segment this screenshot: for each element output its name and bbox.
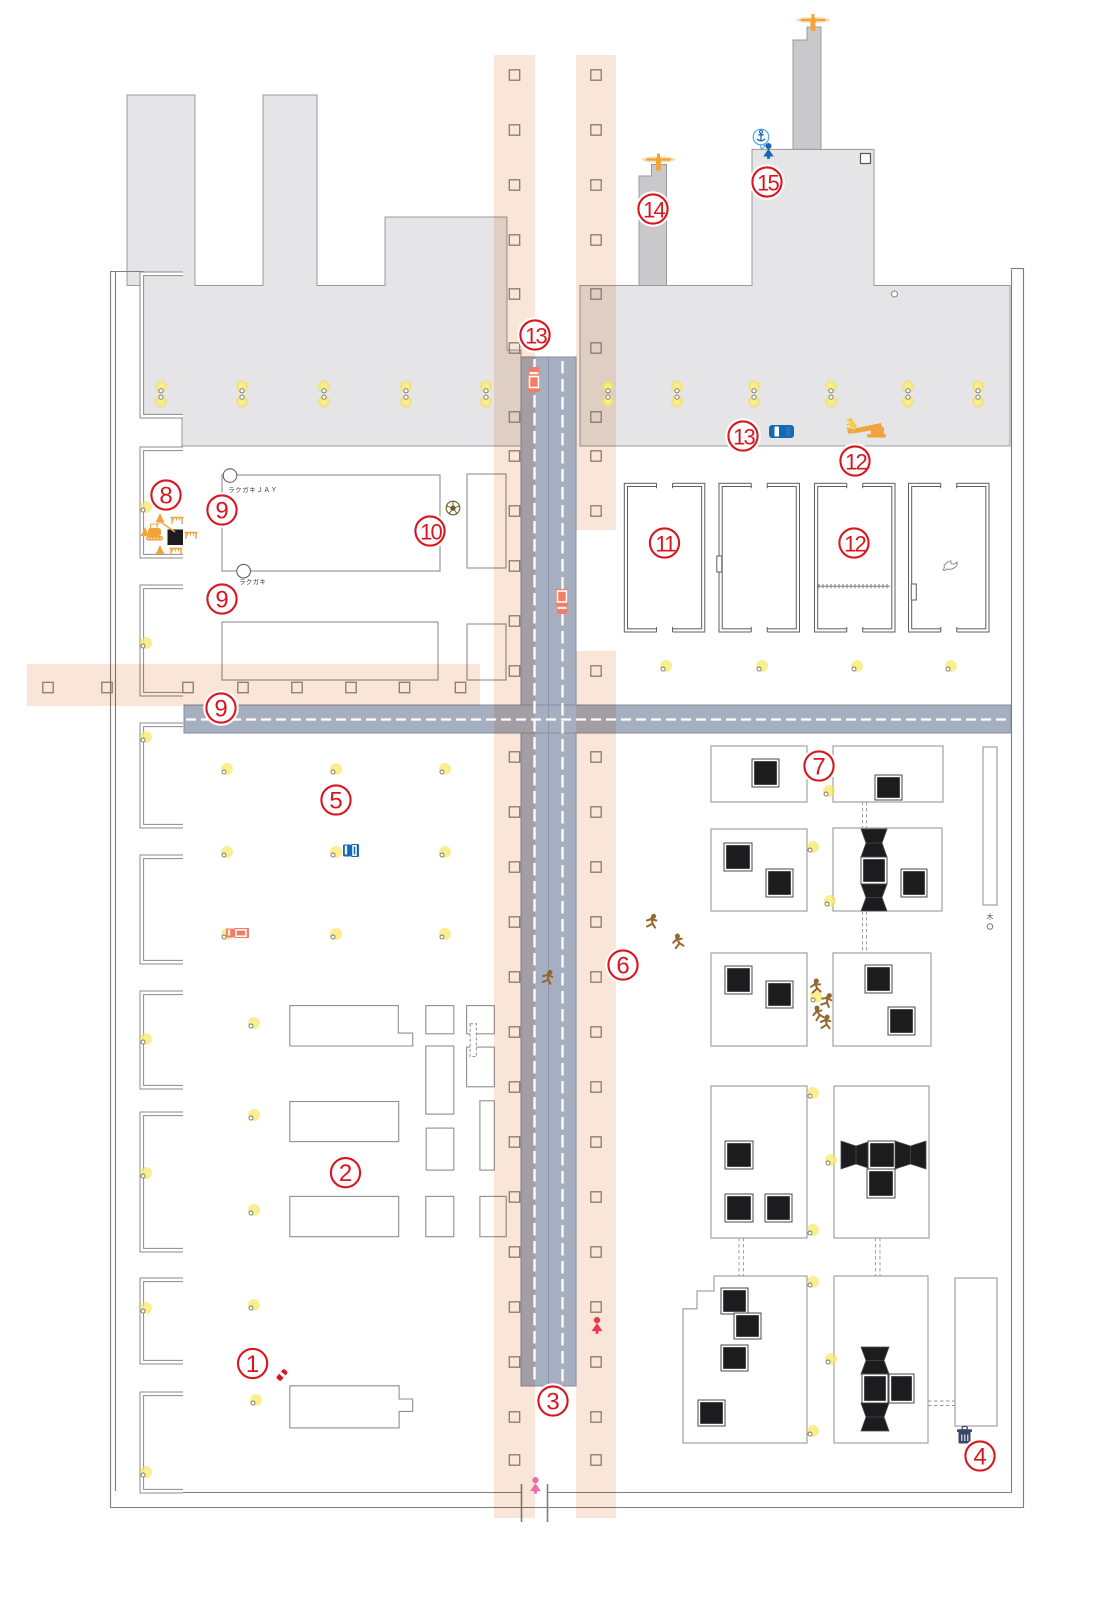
svg-text:10: 10 (420, 519, 442, 544)
svg-text:14: 14 (643, 197, 665, 222)
svg-text:7: 7 (812, 753, 825, 780)
svg-text:9: 9 (215, 586, 228, 613)
svg-text:8: 8 (159, 482, 172, 509)
svg-text:3: 3 (546, 1388, 559, 1415)
svg-text:12: 12 (845, 449, 867, 474)
svg-text:13: 13 (525, 323, 547, 348)
svg-text:ラクガキＪＡＹ: ラクガキＪＡＹ (228, 485, 278, 494)
svg-text:1: 1 (246, 1351, 259, 1378)
svg-text:5: 5 (329, 787, 342, 814)
svg-text:15: 15 (757, 170, 779, 195)
svg-text:9: 9 (214, 695, 227, 722)
svg-text:木: 木 (987, 912, 994, 921)
svg-text:6: 6 (616, 952, 629, 979)
svg-text:ラクガキ: ラクガキ (239, 577, 266, 586)
svg-text:13: 13 (733, 424, 755, 449)
svg-text:9: 9 (215, 497, 228, 524)
svg-text:2: 2 (339, 1160, 352, 1187)
svg-text:4: 4 (973, 1443, 986, 1470)
svg-text:11: 11 (655, 531, 676, 556)
svg-text:12: 12 (844, 531, 866, 556)
